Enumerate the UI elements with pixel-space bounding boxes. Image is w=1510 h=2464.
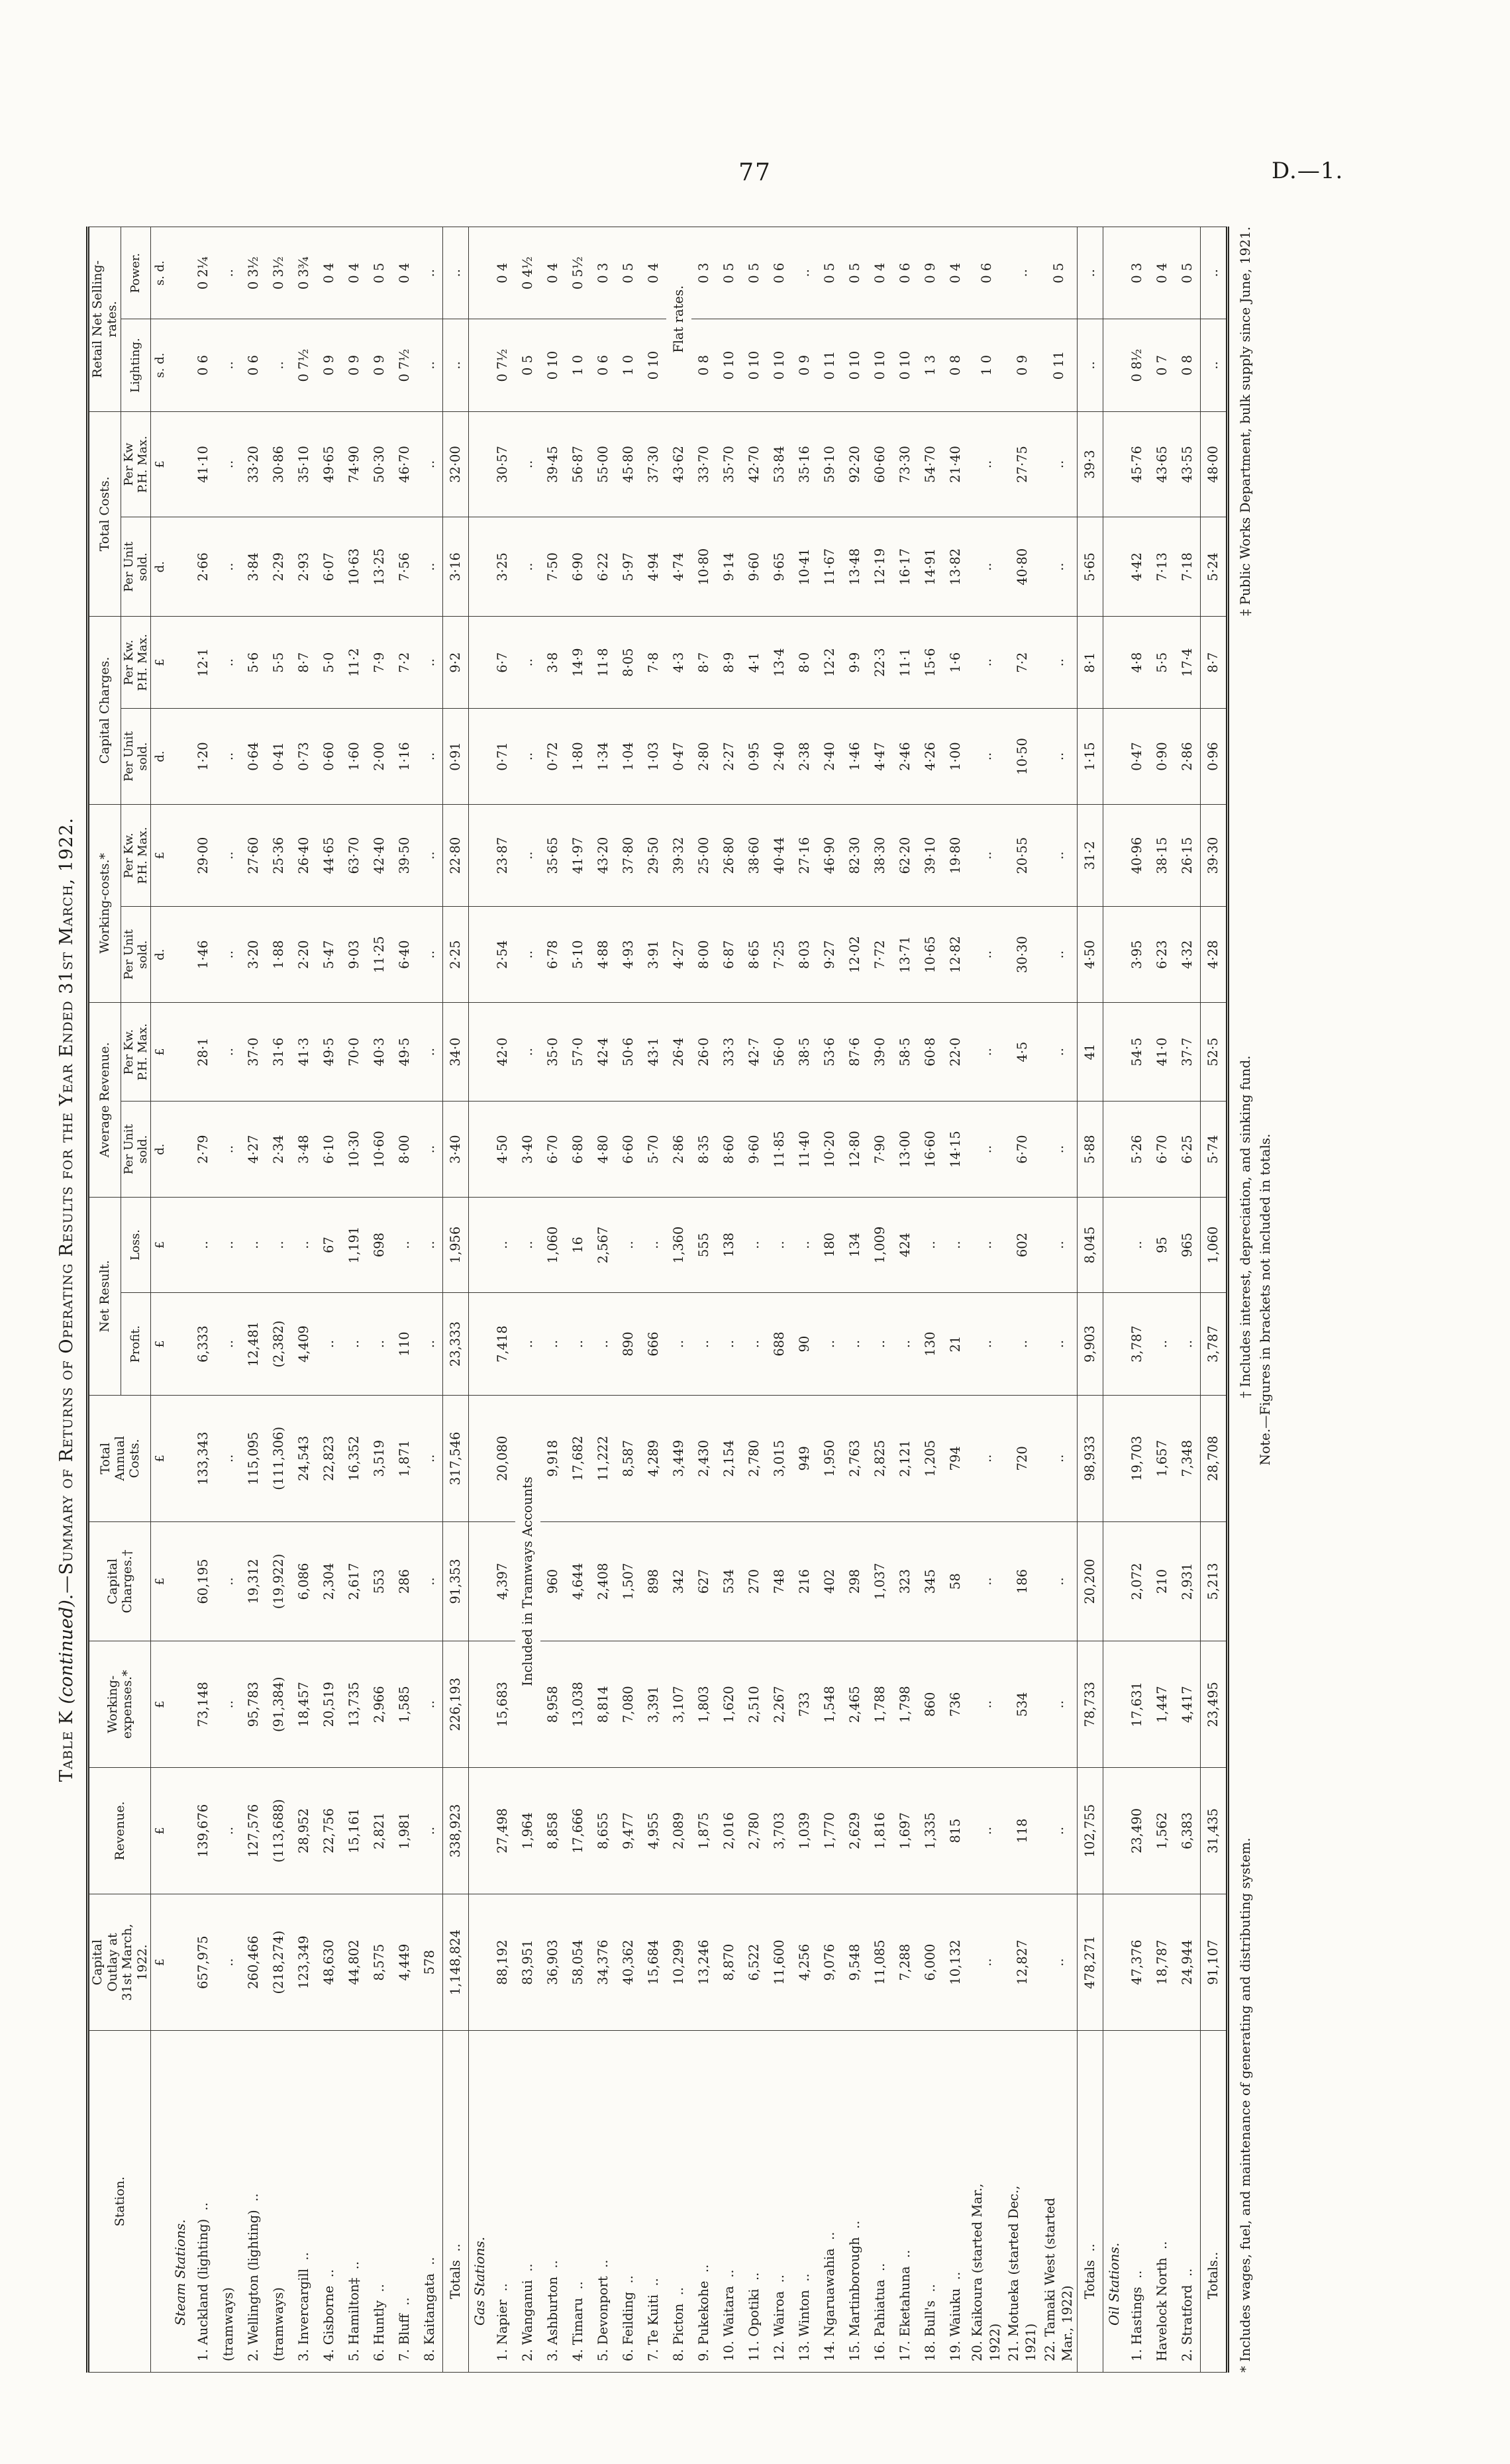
- value-cell: 0 4: [392, 227, 417, 319]
- value-cell: 1 0: [566, 319, 591, 411]
- footnote-pwd: ‡ Public Works Department, bulk supply s…: [1237, 227, 1253, 616]
- station-label: 13. Winton ..: [792, 2031, 817, 2373]
- value-cell: 38·30: [868, 804, 893, 907]
- value-cell: 27·16: [792, 804, 817, 907]
- value-cell: ..: [417, 517, 443, 617]
- value-cell: 40·44: [767, 804, 792, 907]
- station-label: 22. Tamaki West (started Mar., 1922): [1041, 2031, 1078, 2373]
- value-cell: 2·29: [266, 517, 291, 617]
- footnotes: * Includes wages, fuel, and maintenance …: [1237, 227, 1273, 2373]
- value-cell: 42·0: [490, 1002, 515, 1102]
- value-cell: 42·4: [591, 1002, 616, 1102]
- value-cell: 0 8½: [1125, 319, 1150, 411]
- value-cell: 10·41: [792, 517, 817, 617]
- value-cell: 11·25: [367, 907, 392, 1002]
- value-cell: 2,465: [842, 1641, 868, 1768]
- value-cell: 3,107: [666, 1641, 691, 1768]
- value-cell: 1,205: [918, 1395, 943, 1521]
- value-cell: 11,222: [591, 1395, 616, 1521]
- value-cell: ..: [216, 1395, 241, 1521]
- empty-cell: [170, 319, 191, 411]
- value-cell: 2,089: [666, 1768, 691, 1894]
- value-cell: 2,121: [893, 1395, 918, 1521]
- station-label: 5. Hamilton‡ ..: [342, 2031, 367, 2373]
- station-label: 7. Bluff ..: [392, 2031, 417, 2373]
- footnote-wages: * Includes wages, fuel, and maintenance …: [1237, 1837, 1253, 2373]
- value-cell: ..: [1125, 1197, 1150, 1292]
- value-cell: ..: [216, 227, 241, 319]
- value-cell: 9·9: [842, 617, 868, 709]
- station-row: 7. Te Kuiti ..15,6844,9553,3918984,28966…: [641, 227, 666, 2373]
- value-cell: 534: [1005, 1641, 1041, 1768]
- value-cell: 35·0: [540, 1002, 566, 1102]
- value-cell: 41: [1078, 1002, 1103, 1102]
- value-cell: 10·63: [342, 517, 367, 617]
- value-cell: 210: [1150, 1521, 1175, 1641]
- value-cell: 37·0: [241, 1002, 266, 1102]
- value-cell: 46·70: [392, 411, 417, 517]
- empty-cell: [1103, 617, 1125, 709]
- station-row: 3. Ashburton ..36,9038,8588,9589609,918.…: [540, 227, 566, 2373]
- value-cell: 2,072: [1125, 1521, 1150, 1641]
- column-header: Capital Outlay at 31st March, 1922.: [88, 1894, 151, 2030]
- value-cell: 36,903: [540, 1894, 566, 2030]
- empty-cell: [170, 804, 191, 907]
- value-cell: 27,498: [490, 1768, 515, 1894]
- value-cell: 6·60: [616, 1102, 641, 1197]
- value-cell: 602: [1005, 1197, 1041, 1292]
- value-cell: 0 10: [641, 319, 666, 411]
- value-cell: 4·94: [641, 517, 666, 617]
- value-cell: 44·65: [317, 804, 342, 907]
- value-cell: 8,655: [591, 1768, 616, 1894]
- station-row: 6. Feilding ..40,3629,4777,0801,5078,587…: [616, 227, 641, 2373]
- value-cell: 91,107: [1201, 1894, 1228, 2030]
- value-cell: 1,148,824: [443, 1894, 469, 2030]
- value-cell: 9,076: [817, 1894, 842, 2030]
- value-cell: 2,629: [842, 1768, 868, 1894]
- section-heading-row: Oil Stations.: [1103, 227, 1125, 2373]
- value-cell: ..: [216, 709, 241, 804]
- column-header: Revenue.: [88, 1768, 151, 1894]
- value-cell: 0 5: [515, 319, 540, 411]
- value-cell: 0 10: [767, 319, 792, 411]
- value-cell: 3·84: [241, 517, 266, 617]
- station-row: (tramways)(218,274)(113,688)(91,384)(19,…: [266, 227, 291, 2373]
- station-label: Totals ..: [443, 2031, 469, 2373]
- value-cell: 37·7: [1175, 1002, 1201, 1102]
- value-cell: 3,787: [1201, 1293, 1228, 1396]
- station-label: 1. Hastings ..: [1125, 2031, 1150, 2373]
- value-cell: 0 9: [918, 227, 943, 319]
- station-row: 6. Huntly ..8,5752,8212,9665533,519..698…: [367, 227, 392, 2373]
- value-cell: 43·65: [1150, 411, 1175, 517]
- unit-cell: £: [151, 1641, 170, 1768]
- value-cell: 7,080: [616, 1641, 641, 1768]
- value-cell: 270: [742, 1521, 767, 1641]
- value-cell: 11,085: [868, 1894, 893, 2030]
- value-cell: 860: [918, 1641, 943, 1768]
- value-cell: 62·20: [893, 804, 918, 907]
- value-cell: 57·0: [566, 1002, 591, 1102]
- column-header: Retail Net Selling- rates.: [88, 227, 121, 412]
- value-cell: 0·72: [540, 709, 566, 804]
- value-cell: 0 9: [367, 319, 392, 411]
- value-cell: 1·00: [943, 709, 968, 804]
- value-cell: 39·30: [1201, 804, 1228, 907]
- value-cell: 0·90: [1150, 709, 1175, 804]
- station-label: 9. Pukekohe ..: [691, 2031, 717, 2373]
- value-cell: 34·0: [443, 1002, 469, 1102]
- totals-row: Totals..91,10731,43523,4955,21328,7083,7…: [1201, 227, 1228, 2373]
- value-cell: 22·3: [868, 617, 893, 709]
- value-cell: 8,045: [1078, 1197, 1103, 1292]
- station-label: 1. Napier ..: [490, 2031, 515, 2373]
- empty-cell: [170, 1894, 191, 2030]
- value-cell: ..: [1041, 1894, 1078, 2030]
- value-cell: 43·20: [591, 804, 616, 907]
- value-cell: 260,466: [241, 1894, 266, 2030]
- value-cell: 39·10: [918, 804, 943, 907]
- value-cell: ..: [968, 1102, 1005, 1197]
- value-cell: 25·36: [266, 804, 291, 907]
- value-cell: 13·4: [767, 617, 792, 709]
- value-cell: ..: [417, 411, 443, 517]
- value-cell: 1,009: [868, 1197, 893, 1292]
- empty-cell: [170, 709, 191, 804]
- value-cell: ..: [342, 1293, 367, 1396]
- value-cell: ..: [792, 1197, 817, 1292]
- station-row: 9. Pukekohe ..13,2461,8751,8036272,430..…: [691, 227, 717, 2373]
- value-cell: 5·97: [616, 517, 641, 617]
- table-title-part1: Table K: [56, 1704, 77, 1782]
- value-cell: 95,783: [241, 1641, 266, 1768]
- value-cell: (111,306): [266, 1395, 291, 1521]
- value-cell: ..: [266, 319, 291, 411]
- station-label: 8. Picton ..: [666, 2031, 691, 2373]
- empty-cell: [170, 1768, 191, 1894]
- value-cell: 1,697: [893, 1768, 918, 1894]
- value-cell: 17,682: [566, 1395, 591, 1521]
- value-cell: 1,060: [540, 1197, 566, 1292]
- value-cell: 10·50: [1005, 709, 1041, 804]
- value-cell: ..: [1041, 1197, 1078, 1292]
- value-cell: 6·7: [490, 617, 515, 709]
- value-cell: 29·50: [641, 804, 666, 907]
- value-cell: 32·00: [443, 411, 469, 517]
- value-cell: 17,631: [1125, 1641, 1150, 1768]
- value-cell: 4·1: [742, 617, 767, 709]
- value-cell: ..: [540, 1293, 566, 1396]
- station-label: 12. Wairoa ..: [767, 2031, 792, 2373]
- value-cell: ..: [443, 227, 469, 319]
- value-cell: 54·70: [918, 411, 943, 517]
- value-cell: 7,418: [490, 1293, 515, 1396]
- value-cell: 28,952: [291, 1768, 317, 1894]
- value-cell: 31·6: [266, 1002, 291, 1102]
- value-cell: 7,288: [893, 1894, 918, 2030]
- value-cell: 0·73: [291, 709, 317, 804]
- value-cell: 298: [842, 1521, 868, 1641]
- value-cell: ..: [1041, 709, 1078, 804]
- station-row: 1. Auckland (lighting) ..657,975139,6767…: [191, 227, 216, 2373]
- operating-results-table: Station.Capital Outlay at 31st March, 19…: [86, 227, 1229, 2373]
- empty-cell: [469, 1641, 491, 1768]
- empty-cell: [1103, 1521, 1125, 1641]
- column-header: Net Result.: [88, 1197, 121, 1395]
- value-cell: ..: [216, 1293, 241, 1396]
- empty-cell: [469, 907, 491, 1002]
- value-cell: 3,519: [367, 1395, 392, 1521]
- empty-cell: [170, 1293, 191, 1396]
- value-cell: 95: [1150, 1197, 1175, 1292]
- value-cell: ..: [968, 1002, 1005, 1102]
- column-header: Station.: [88, 2031, 151, 2373]
- value-cell: 9·03: [342, 907, 367, 1002]
- value-cell: 2,567: [591, 1197, 616, 1292]
- station-label: Totals ..: [1078, 2031, 1103, 2373]
- value-cell: 4,397: [490, 1521, 515, 1641]
- value-cell: 33·20: [241, 411, 266, 517]
- empty-cell: [469, 227, 491, 319]
- value-cell: 180: [817, 1197, 842, 1292]
- value-cell: 1·6: [943, 617, 968, 709]
- value-cell: (113,688): [266, 1768, 291, 1894]
- station-label: 18. Bull's ..: [918, 2031, 943, 2373]
- value-cell: 2,780: [742, 1768, 767, 1894]
- value-cell: 6·78: [540, 907, 566, 1002]
- value-cell: 0·71: [490, 709, 515, 804]
- value-cell: ..: [616, 1197, 641, 1292]
- value-cell: 1,956: [443, 1197, 469, 1292]
- value-cell: 4,449: [392, 1894, 417, 2030]
- value-cell: 2,408: [591, 1521, 616, 1641]
- value-cell: 13·00: [893, 1102, 918, 1197]
- value-cell: 0 9: [317, 319, 342, 411]
- value-cell: 890: [616, 1293, 641, 1396]
- value-cell: 43·1: [641, 1002, 666, 1102]
- empty-cell: [1103, 1395, 1125, 1521]
- value-cell: 33·3: [717, 1002, 742, 1102]
- value-cell: ..: [742, 1293, 767, 1396]
- value-cell: 8·03: [792, 907, 817, 1002]
- value-cell: 0·95: [742, 709, 767, 804]
- value-cell: 1,981: [392, 1768, 417, 1894]
- value-cell: 78,733: [1078, 1641, 1103, 1768]
- value-cell: 40·3: [367, 1002, 392, 1102]
- value-cell: 1,447: [1150, 1641, 1175, 1768]
- value-cell: ..: [417, 1197, 443, 1292]
- value-cell: 6·70: [1005, 1102, 1041, 1197]
- value-cell: 0 9: [792, 319, 817, 411]
- value-cell: ..: [968, 411, 1005, 517]
- value-cell: 8·9: [717, 617, 742, 709]
- value-cell: 3·48: [291, 1102, 317, 1197]
- value-cell: 35·65: [540, 804, 566, 907]
- value-cell: 0 4: [342, 227, 367, 319]
- value-cell: 60·60: [868, 411, 893, 517]
- value-cell: 24,944: [1175, 1894, 1201, 2030]
- value-cell: ..: [515, 907, 540, 1002]
- value-cell: 1·60: [342, 709, 367, 804]
- value-cell: ..: [968, 709, 1005, 804]
- value-cell: ..: [417, 319, 443, 411]
- value-cell: 17·4: [1175, 617, 1201, 709]
- value-cell: ..: [515, 1293, 540, 1396]
- value-cell: 0 4½: [515, 227, 540, 319]
- column-header: Capital Charges.: [88, 617, 121, 805]
- value-cell: (2,382): [266, 1293, 291, 1396]
- value-cell: 45·80: [616, 411, 641, 517]
- value-cell: 1,657: [1150, 1395, 1175, 1521]
- value-cell: 17,666: [566, 1768, 591, 1894]
- value-cell: 40·80: [1005, 517, 1041, 617]
- value-cell: 2·54: [490, 907, 515, 1002]
- value-cell: 28·1: [191, 1002, 216, 1102]
- value-cell: 2·40: [767, 709, 792, 804]
- value-cell: 666: [641, 1293, 666, 1396]
- value-cell: 1 0: [968, 319, 1005, 411]
- station-label: 11. Opotiki ..: [742, 2031, 767, 2373]
- value-cell: 56·0: [767, 1002, 792, 1102]
- value-cell: 342: [666, 1521, 691, 1641]
- value-cell: 0 2¼: [191, 227, 216, 319]
- value-cell: 317,546: [443, 1395, 469, 1521]
- value-cell: ..: [1078, 227, 1103, 319]
- value-cell: 0 10: [742, 319, 767, 411]
- value-cell: ..: [216, 1894, 241, 2030]
- station-label: 1. Auckland (lighting) ..: [191, 2031, 216, 2373]
- subcolumn-header: Per Kw. P.H. Max.: [121, 617, 150, 709]
- value-cell: 5·5: [266, 617, 291, 709]
- value-cell: 27·75: [1005, 411, 1041, 517]
- value-cell: 48,630: [317, 1894, 342, 2030]
- value-cell: 110: [392, 1293, 417, 1396]
- value-cell: 19·80: [943, 804, 968, 907]
- value-cell: ..: [216, 1197, 241, 1292]
- empty-cell: [469, 1293, 491, 1396]
- value-cell: 8·1: [1078, 617, 1103, 709]
- column-header: Capital Charges.†: [88, 1521, 151, 1641]
- value-cell: 0 4: [1150, 227, 1175, 319]
- value-cell: 6·07: [317, 517, 342, 617]
- section-heading: Steam Stations.: [170, 2031, 191, 2373]
- value-cell: 3·91: [641, 907, 666, 1002]
- value-cell: ..: [1041, 1521, 1078, 1641]
- value-cell: 15,161: [342, 1768, 367, 1894]
- value-cell: 49·65: [317, 411, 342, 517]
- column-header: Average Revenue.: [88, 1002, 121, 1197]
- value-cell: 1·46: [842, 709, 868, 804]
- value-cell: ..: [266, 1197, 291, 1292]
- value-cell: 60·8: [918, 1002, 943, 1102]
- value-cell: 0 5: [367, 227, 392, 319]
- value-cell: 4·28: [1201, 907, 1228, 1002]
- value-cell: 6·22: [591, 517, 616, 617]
- value-cell: Included in Tramways Accounts: [515, 1395, 540, 1767]
- value-cell: 5,213: [1201, 1521, 1228, 1641]
- value-cell: 0 6: [893, 227, 918, 319]
- station-row: 13. Winton ..4,2561,03973321694990..11·4…: [792, 227, 817, 2373]
- value-cell: ..: [317, 1293, 342, 1396]
- value-cell: 33·70: [691, 411, 717, 517]
- column-header: Working-costs.*: [88, 804, 121, 1002]
- value-cell: 1,335: [918, 1768, 943, 1894]
- empty-cell: [469, 1768, 491, 1894]
- value-cell: 5·88: [1078, 1102, 1103, 1197]
- value-cell: 0 11: [1041, 319, 1078, 411]
- value-cell: 10·60: [367, 1102, 392, 1197]
- value-cell: 2·00: [367, 709, 392, 804]
- section-heading-row: Steam Stations.: [170, 227, 191, 2373]
- header-row-groups: Station.Capital Outlay at 31st March, 19…: [88, 227, 121, 2373]
- value-cell: 19,703: [1125, 1395, 1150, 1521]
- value-cell: 31,435: [1201, 1768, 1228, 1894]
- value-cell: 2,267: [767, 1641, 792, 1768]
- value-cell: 4,955: [641, 1768, 666, 1894]
- value-cell: 2·38: [792, 709, 817, 804]
- value-cell: 20,200: [1078, 1521, 1103, 1641]
- value-cell: 1 0: [616, 319, 641, 411]
- value-cell: 98,933: [1078, 1395, 1103, 1521]
- value-cell: 4·26: [918, 709, 943, 804]
- value-cell: 73·30: [893, 411, 918, 517]
- value-cell: 949: [792, 1395, 817, 1521]
- value-cell: 898: [641, 1521, 666, 1641]
- value-cell: ..: [1041, 1641, 1078, 1768]
- value-cell: 8·00: [392, 1102, 417, 1197]
- value-cell: 9·60: [742, 1102, 767, 1197]
- station-label: 6. Huntly ..: [367, 2031, 392, 2373]
- value-cell: 22·80: [443, 804, 469, 907]
- value-cell: 4,417: [1175, 1641, 1201, 1768]
- value-cell: 12·82: [943, 907, 968, 1002]
- value-cell: 2·66: [191, 517, 216, 617]
- station-row: 15. Martinborough ..9,5482,6292,4652982,…: [842, 227, 868, 2373]
- value-cell: 0 5: [717, 227, 742, 319]
- value-cell: 6·40: [392, 907, 417, 1002]
- value-cell: 0 4: [317, 227, 342, 319]
- subcolumn-header: Per Unit sold.: [121, 517, 150, 617]
- value-cell: 2,825: [868, 1395, 893, 1521]
- value-cell: 3,703: [767, 1768, 792, 1894]
- value-cell: ..: [417, 617, 443, 709]
- subcolumn-header: Per Kw. P.H. Max.: [121, 804, 150, 907]
- value-cell: 23·87: [490, 804, 515, 907]
- value-cell: 40·96: [1125, 804, 1150, 907]
- value-cell: 42·40: [367, 804, 392, 907]
- value-cell: 7·56: [392, 517, 417, 617]
- value-cell: 748: [767, 1521, 792, 1641]
- station-row: 7. Bluff ..4,4491,9811,5852861,871110..8…: [392, 227, 417, 2373]
- value-cell: 70·0: [342, 1002, 367, 1102]
- value-cell: 338,923: [443, 1768, 469, 1894]
- value-cell: 345: [918, 1521, 943, 1641]
- station-row: 10. Waitara ..8,8702,0161,6205342,154..1…: [717, 227, 742, 2373]
- value-cell: 226,193: [443, 1641, 469, 1768]
- empty-cell: [469, 1894, 491, 2030]
- value-cell: ..: [216, 319, 241, 411]
- value-cell: 23,333: [443, 1293, 469, 1396]
- value-cell: 67: [317, 1197, 342, 1292]
- value-cell: 0 6: [241, 319, 266, 411]
- station-row: 5. Devonport ..34,3768,6558,8142,40811,2…: [591, 227, 616, 2373]
- value-cell: 38·15: [1150, 804, 1175, 907]
- table-title-continued: (continued): [56, 1600, 77, 1704]
- subcolumn-header: Power.: [121, 227, 150, 319]
- station-label: Totals..: [1201, 2031, 1228, 2373]
- value-cell: 30·57: [490, 411, 515, 517]
